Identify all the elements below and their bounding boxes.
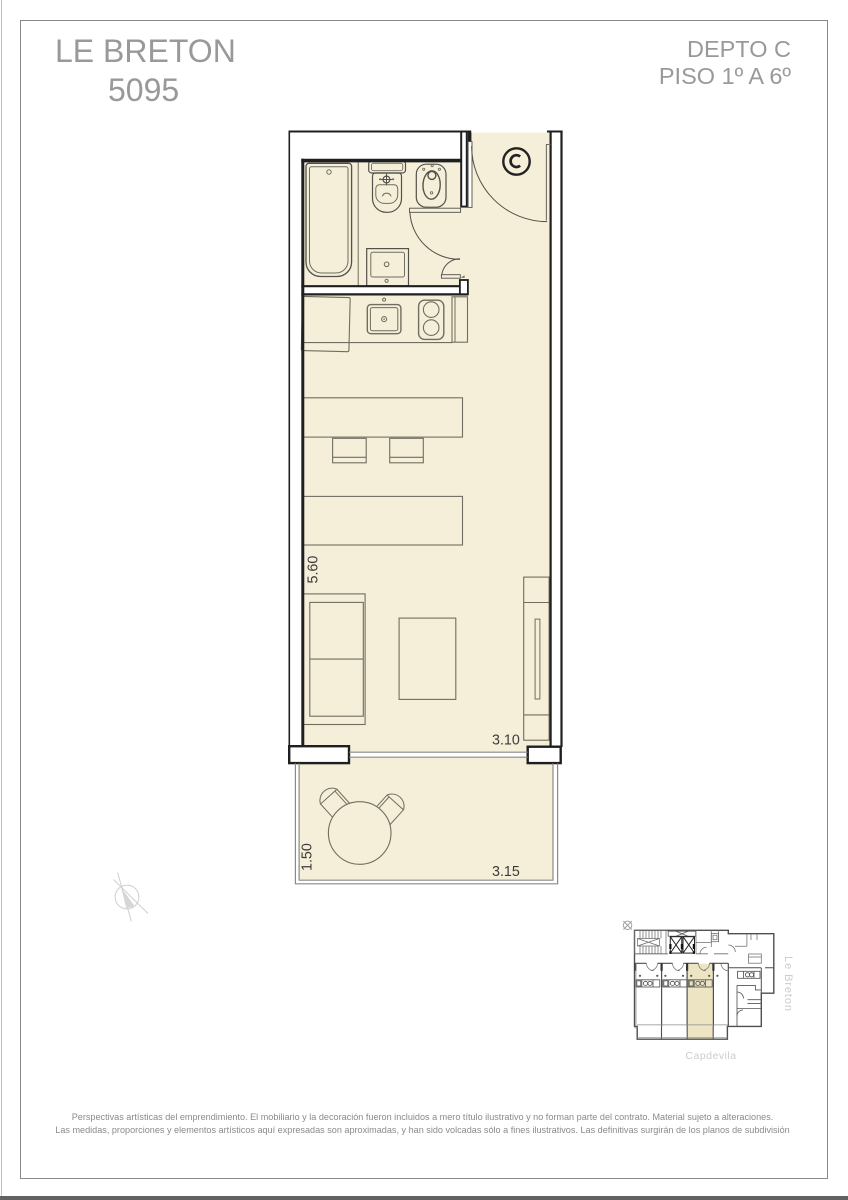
- svg-text:3.10: 3.10: [492, 732, 520, 748]
- svg-text:1.50: 1.50: [300, 843, 316, 871]
- svg-text:5.60: 5.60: [306, 556, 322, 584]
- svg-text:3.15: 3.15: [492, 864, 520, 880]
